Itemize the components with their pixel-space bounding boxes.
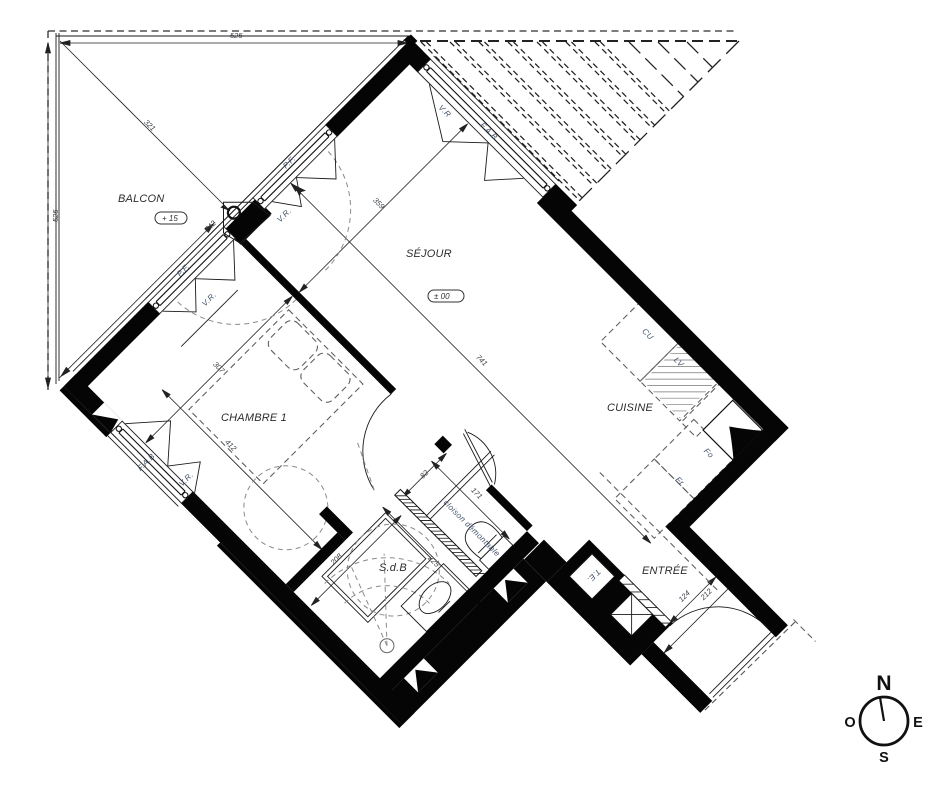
svg-text:CHAMBRE 1: CHAMBRE 1 [221, 412, 287, 424]
svg-text:525: 525 [51, 209, 60, 222]
svg-text:BALCON: BALCON [118, 193, 164, 205]
svg-text:S.d.B: S.d.B [379, 562, 407, 574]
svg-text:E: E [913, 715, 923, 731]
svg-text:N: N [876, 672, 891, 695]
svg-text:± 00: ± 00 [434, 292, 450, 301]
svg-text:O: O [844, 715, 855, 731]
svg-text:S: S [879, 750, 889, 766]
svg-text:CUISINE: CUISINE [607, 402, 653, 414]
svg-text:+ 15: + 15 [162, 214, 178, 223]
svg-text:ENTRÉE: ENTRÉE [642, 564, 688, 577]
svg-text:SÉJOUR: SÉJOUR [406, 247, 452, 260]
svg-text:525: 525 [230, 31, 243, 40]
